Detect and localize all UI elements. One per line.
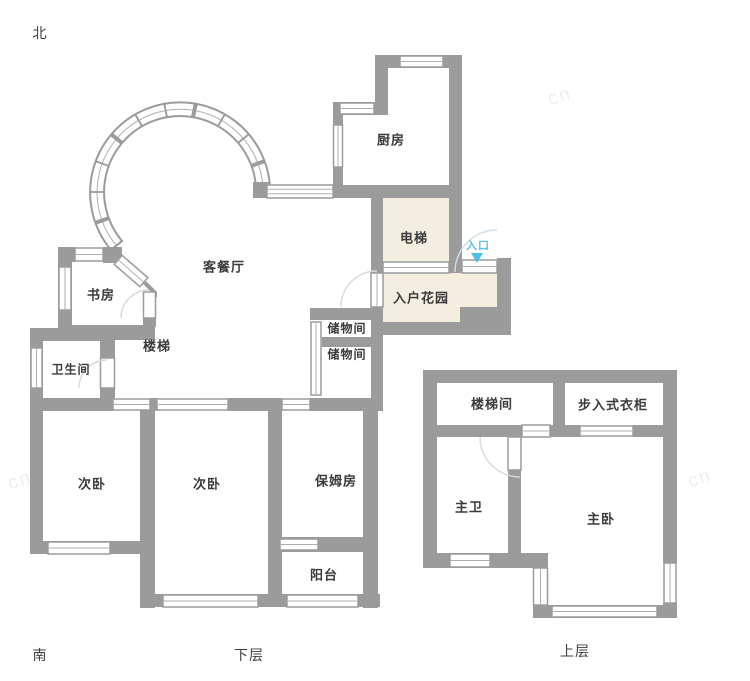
room-label-elevator: 电梯 [400, 228, 428, 247]
room-label-stairs: 楼梯 [143, 336, 171, 355]
room-label-storage-2: 储物间 [327, 346, 366, 363]
room-label-walk-in-closet: 步入式衣柜 [578, 395, 648, 414]
floorplan-canvas: 书房 客餐厅 厨房 电梯 入户花园 储物间 储物间 楼梯 卫生间 次卧 次卧 保… [0, 0, 750, 681]
room-label-master-bath: 主卫 [455, 497, 483, 516]
room-label-bathroom: 卫生间 [51, 361, 90, 378]
room-label-master-bedroom: 主卧 [587, 509, 615, 528]
room-label-stairwell: 楼梯间 [471, 394, 513, 413]
room-label-kitchen: 厨房 [377, 130, 405, 149]
compass-south-label: 南 [33, 645, 48, 665]
room-label-nanny-room: 保姆房 [315, 471, 357, 490]
room-label-bedroom-2: 次卧 [193, 474, 221, 493]
upper-floor-caption: 上层 [560, 641, 590, 661]
lower-floor-caption: 下层 [234, 645, 264, 665]
room-label-living-dining: 客餐厅 [203, 257, 245, 276]
room-label-entry-garden: 入户花园 [393, 288, 449, 307]
floorplan-svg [0, 0, 750, 681]
bay-window [90, 102, 270, 250]
entrance-label: 入口 [466, 237, 490, 253]
room-label-bedroom-1: 次卧 [78, 474, 106, 493]
compass-north-label: 北 [33, 23, 48, 43]
room-label-balcony: 阳台 [310, 565, 338, 584]
room-label-storage-1: 储物间 [327, 320, 366, 337]
room-label-study: 书房 [87, 285, 115, 304]
walls-lower-floor [30, 55, 511, 608]
